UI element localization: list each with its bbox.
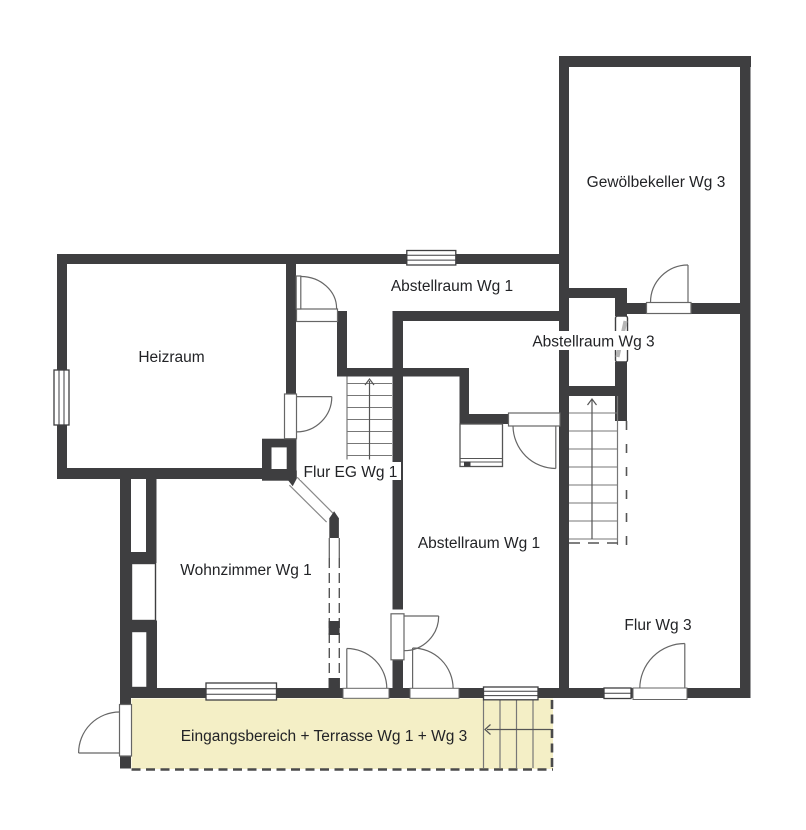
svg-text:Heizraum: Heizraum [138, 349, 204, 366]
svg-text:Wohnzimmer Wg 1: Wohnzimmer Wg 1 [180, 562, 312, 579]
svg-text:Flur EG Wg 1: Flur EG Wg 1 [304, 464, 398, 481]
svg-text:Flur Wg 3: Flur Wg 3 [624, 617, 691, 634]
svg-text:Eingangsbereich + Terrasse Wg: Eingangsbereich + Terrasse Wg 1 + Wg 3 [181, 728, 468, 745]
svg-text:Gewölbekeller Wg 3: Gewölbekeller Wg 3 [587, 174, 726, 191]
svg-text:Abstellraum Wg 3: Abstellraum Wg 3 [532, 334, 654, 351]
svg-text:Abstellraum Wg 1: Abstellraum Wg 1 [418, 535, 540, 552]
svg-text:Abstellraum Wg 1: Abstellraum Wg 1 [391, 278, 513, 295]
